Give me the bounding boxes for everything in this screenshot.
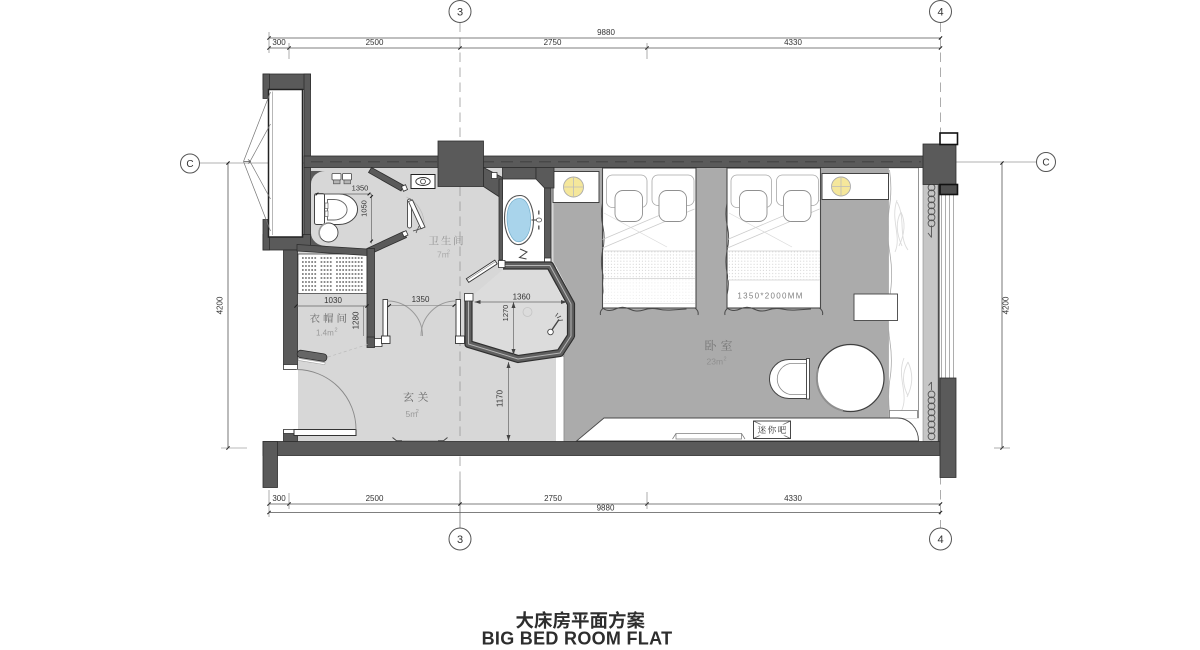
svg-text:2: 2 (416, 409, 419, 415)
svg-text:C: C (1042, 158, 1049, 169)
svg-text:4330: 4330 (784, 38, 802, 47)
svg-text:4200: 4200 (216, 296, 225, 314)
svg-text:1350: 1350 (412, 295, 430, 304)
svg-text:C: C (186, 159, 193, 170)
svg-text:2750: 2750 (544, 494, 562, 503)
svg-text:1050: 1050 (360, 200, 369, 217)
svg-text:23m: 23m (707, 357, 724, 367)
svg-text:1.4m: 1.4m (316, 329, 334, 338)
svg-text:1350*2000MM: 1350*2000MM (737, 292, 803, 301)
svg-text:9880: 9880 (597, 504, 615, 513)
svg-text:1030: 1030 (324, 296, 342, 305)
svg-text:3: 3 (457, 534, 463, 546)
svg-text:1350: 1350 (352, 184, 369, 193)
svg-text:2: 2 (335, 328, 338, 334)
svg-text:1170: 1170 (496, 389, 505, 407)
svg-text:1360: 1360 (513, 293, 531, 302)
svg-text:4200: 4200 (1002, 296, 1011, 314)
svg-text:BIG BED ROOM FLAT: BIG BED ROOM FLAT (482, 629, 673, 649)
svg-text:2750: 2750 (544, 38, 562, 47)
svg-text:1280: 1280 (352, 311, 361, 329)
svg-text:9880: 9880 (597, 28, 615, 37)
svg-text:4: 4 (937, 534, 943, 546)
svg-text:2: 2 (724, 357, 727, 363)
svg-text:1270: 1270 (501, 305, 510, 322)
svg-text:300: 300 (272, 38, 286, 47)
svg-text:300: 300 (272, 494, 286, 503)
svg-text:4: 4 (937, 6, 943, 18)
svg-text:2500: 2500 (366, 38, 384, 47)
svg-text:2500: 2500 (366, 494, 384, 503)
svg-text:3: 3 (457, 6, 463, 18)
svg-text:4330: 4330 (784, 494, 802, 503)
svg-text:2: 2 (447, 250, 450, 256)
